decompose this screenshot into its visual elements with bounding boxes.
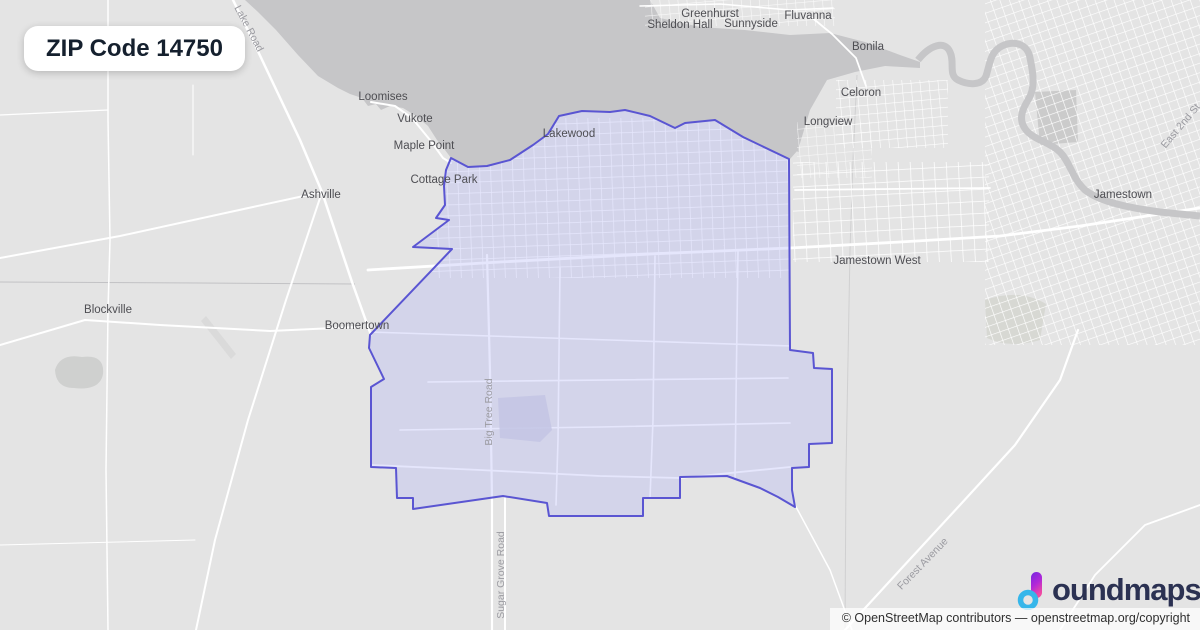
boundmaps-wordmark: oundmaps <box>1052 571 1200 609</box>
map-screenshot: Greenhurst Sheldon Hall Sunnyside Fluvan… <box>0 0 1200 630</box>
place-label-cottage-park: Cottage Park <box>410 174 477 186</box>
road-label-sugar-grove-road: Sugar Grove Road <box>495 531 507 619</box>
place-label-longview: Longview <box>804 116 853 128</box>
place-label-sheldon-hall: Sheldon Hall <box>647 19 712 31</box>
boundmaps-b-icon <box>1014 570 1050 610</box>
place-label-vukote: Vukote <box>397 113 432 125</box>
jamestown-street-grid <box>985 0 1200 345</box>
place-label-maple-point: Maple Point <box>394 140 456 152</box>
woods-patch <box>55 356 103 388</box>
zip-code-badge: ZIP Code 14750 <box>24 26 245 71</box>
map-canvas[interactable]: Greenhurst Sheldon Hall Sunnyside Fluvan… <box>0 0 1200 630</box>
place-label-bonila: Bonila <box>852 41 885 53</box>
place-label-celoron: Celoron <box>841 87 881 99</box>
place-label-lakewood: Lakewood <box>543 128 595 140</box>
place-label-sunnyside: Sunnyside <box>724 18 778 30</box>
boundmaps-logo: oundmaps <box>1014 570 1200 610</box>
longview-street-grid <box>797 122 872 178</box>
place-label-loomises: Loomises <box>358 91 407 103</box>
place-label-jamestown: Jamestown <box>1094 189 1152 201</box>
attribution-bar[interactable]: © OpenStreetMap contributors — openstree… <box>830 608 1200 630</box>
place-label-boomertown: Boomertown <box>325 320 390 332</box>
place-label-jamestown-west: Jamestown West <box>833 255 921 267</box>
attribution-text[interactable]: © OpenStreetMap contributors — openstree… <box>842 611 1190 625</box>
road-label-big-tree-road: Big Tree Road <box>483 378 495 445</box>
place-label-ashville: Ashville <box>301 189 341 201</box>
place-label-fluvanna: Fluvanna <box>784 10 832 22</box>
place-label-blockville: Blockville <box>84 304 132 316</box>
zip-code-badge-title: ZIP Code 14750 <box>46 35 223 62</box>
